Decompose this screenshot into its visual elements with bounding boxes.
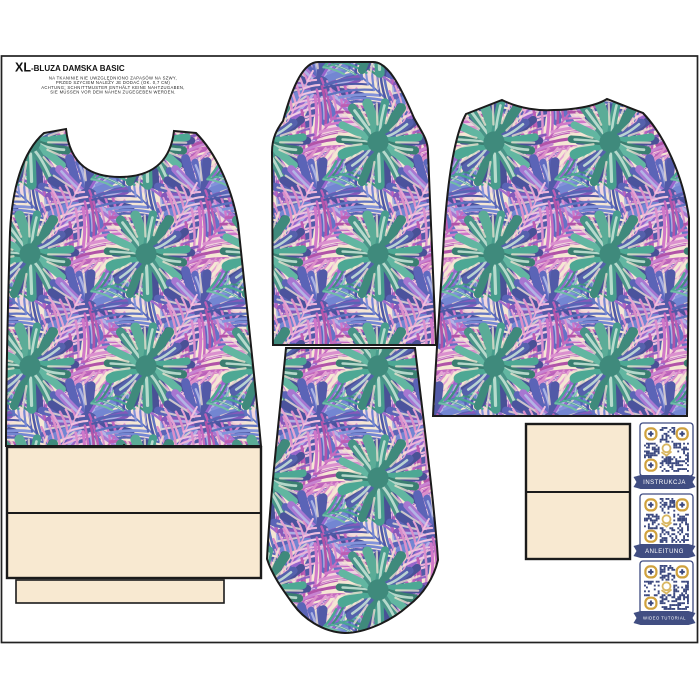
svg-text:INSTRUKCJA: INSTRUKCJA — [643, 480, 686, 486]
svg-text:SIE MÜSSEN VOR DEM NÄHEN ZUGEG: SIE MÜSSEN VOR DEM NÄHEN ZUGEGEBEN WERDE… — [50, 90, 175, 95]
svg-text:WIDEO TUTORIAL: WIDEO TUTORIAL — [643, 616, 686, 621]
svg-text:ANLEITUNG: ANLEITUNG — [645, 549, 684, 555]
